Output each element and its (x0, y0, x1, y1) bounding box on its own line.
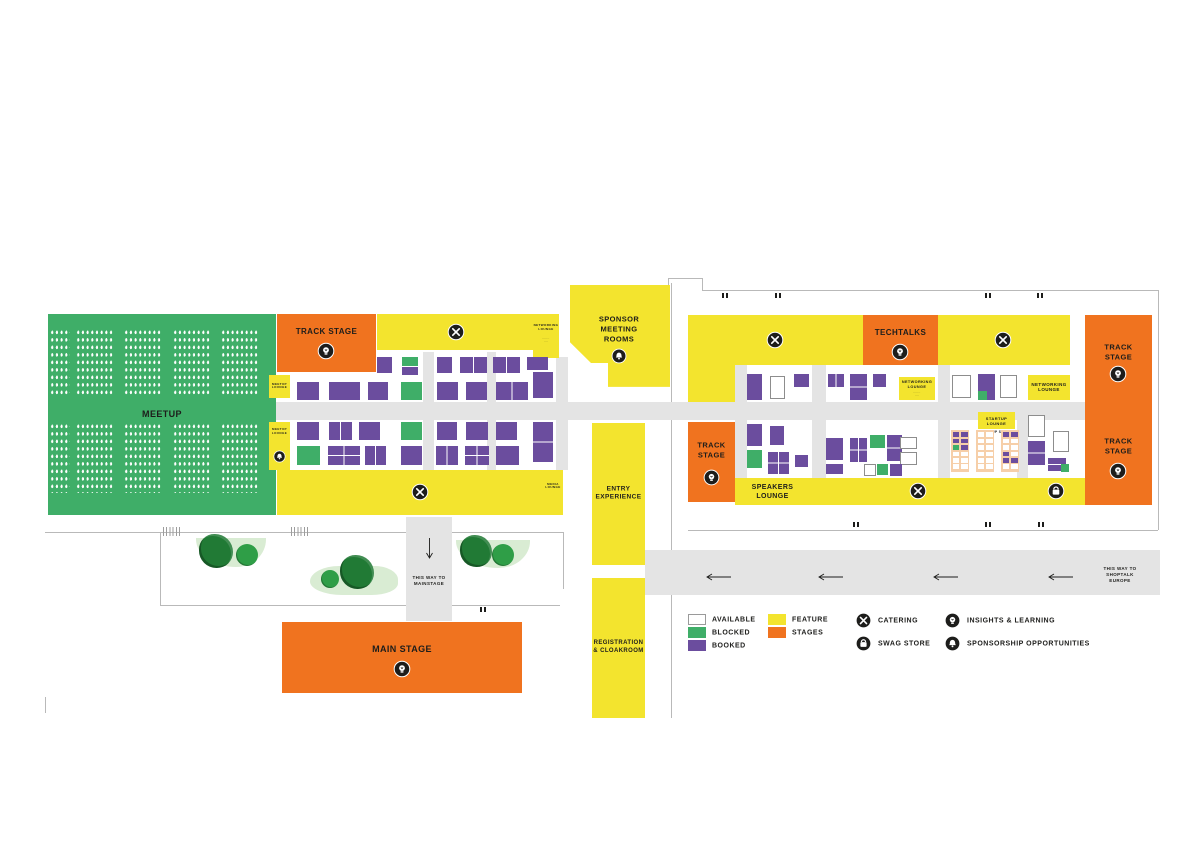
booth-booked[interactable] (794, 374, 809, 387)
legend-label: BLOCKED (712, 630, 750, 637)
studio-table-available[interactable] (986, 432, 993, 437)
studio-table-available[interactable] (986, 439, 993, 444)
floor-plan-canvas: MEETUPTRACK STAGENETWORKING LOUNGE······… (0, 0, 1200, 848)
entry-experience-label: ENTRY EXPERIENCE (596, 486, 642, 503)
tree-icon (340, 555, 374, 589)
legend-swatch-feature (768, 614, 786, 625)
legend-swatch-blocked (688, 627, 706, 638)
corridor (735, 365, 747, 478)
booth-booked[interactable] (465, 446, 489, 465)
wall-segment (452, 532, 564, 533)
door-mark-icon (1038, 522, 1045, 527)
wall-segment (45, 532, 406, 533)
techtalks-insights-icon (891, 343, 909, 361)
startup-lounge-label: STARTUP LOUNGE (986, 415, 1007, 425)
booth-available[interactable] (770, 376, 785, 399)
door-mark-icon (722, 293, 729, 298)
booth-booked[interactable] (873, 374, 886, 387)
studio-table-available[interactable] (978, 464, 985, 469)
studio-table-available[interactable] (978, 432, 985, 437)
wall-segment (668, 278, 669, 286)
feature-bottom-east-b-swag-icon (1047, 482, 1065, 500)
booth-booked[interactable] (496, 422, 517, 440)
left-arrow-icon (705, 568, 731, 576)
booth-booked[interactable] (1028, 441, 1045, 465)
studio-table-available[interactable] (961, 458, 968, 463)
legend-label: BOOKED (712, 643, 746, 650)
stair-hatch (291, 527, 309, 536)
zone-main-stage (282, 622, 522, 693)
zone-track-stage-east-left (688, 422, 735, 502)
meetup-seats (50, 329, 70, 395)
studio-table-available[interactable] (961, 452, 968, 457)
track-stage-west-label: TRACK STAGE (296, 327, 358, 337)
networking-lounge-west-label: NETWORKING LOUNGE (534, 324, 559, 332)
legend-insights-icon (944, 612, 961, 629)
legend-catering-icon (855, 612, 872, 629)
studio-table-booked[interactable] (1003, 458, 1010, 463)
booth-booked[interactable] (436, 446, 458, 465)
main-stage-label: MAIN STAGE (372, 644, 432, 656)
booth-booked[interactable] (533, 422, 553, 462)
studio-table-booked[interactable] (961, 432, 968, 437)
zone-feature-col-east (688, 365, 735, 402)
legend-swatch-available (688, 614, 706, 625)
legend-label: CATERING (878, 617, 918, 624)
left-arrow-icon (932, 568, 958, 576)
booth-available[interactable] (1028, 415, 1045, 437)
wall-segment (452, 605, 560, 606)
track-stage-west-insights-icon (317, 342, 335, 360)
track-stage-south-east-label: TRACK STAGE (1104, 436, 1132, 456)
booth-booked[interactable] (328, 446, 360, 465)
left-arrow-icon (817, 568, 843, 576)
booth-available[interactable] (1000, 375, 1017, 398)
door-mark-icon (480, 607, 487, 612)
booth-available[interactable] (900, 452, 917, 465)
door-mark-icon (985, 522, 992, 527)
meetup-seats (221, 329, 259, 395)
legend-label: INSIGHTS & LEARNING (967, 617, 1055, 624)
wall-segment (160, 532, 161, 605)
track-stage-east-left-insights-icon (703, 469, 720, 486)
meetup-seats (50, 423, 70, 493)
booth-booked[interactable] (850, 374, 867, 400)
meetup-seats (124, 329, 162, 395)
booth-booked[interactable] (359, 422, 380, 440)
booth-blocked[interactable] (401, 382, 422, 400)
zone-networking-lounge-west (533, 314, 559, 358)
studio-table-available[interactable] (978, 445, 985, 450)
booth-blocked[interactable] (1061, 464, 1069, 472)
media-lounge-label: MEDIA LOUNGE (545, 483, 560, 491)
booth-blocked[interactable] (401, 422, 422, 440)
studio-table-blocked[interactable] (953, 445, 960, 450)
studio-table-available[interactable] (961, 464, 968, 469)
meetup-seats (76, 423, 114, 493)
studio-table-booked[interactable] (1011, 458, 1018, 463)
wall-segment (563, 532, 564, 589)
studio-table-available[interactable] (986, 458, 993, 463)
studio-table-available[interactable] (978, 458, 985, 463)
meetup-area-label: MEETUP (142, 409, 182, 421)
sponsor-meeting-rooms-sponsorship-icon (611, 348, 627, 364)
legend-label: STAGES (792, 630, 823, 637)
meetup-seats (124, 423, 162, 493)
legend-label: FEATURE (792, 617, 828, 624)
down-arrow-icon (426, 538, 433, 562)
wall-segment (688, 530, 1158, 531)
booth-booked[interactable] (493, 357, 520, 373)
booth-booked[interactable] (850, 438, 867, 462)
booth-booked[interactable] (329, 422, 352, 440)
booth-booked[interactable] (496, 382, 528, 400)
studio-table-available[interactable] (953, 464, 960, 469)
shoptalk-way-label-label: THIS WAY TO SHOPTALK EUROPE (1103, 566, 1136, 584)
studio-table-available[interactable] (1011, 464, 1018, 469)
booth-booked[interactable] (437, 382, 458, 400)
studio-table-available[interactable] (978, 439, 985, 444)
studio-table-available[interactable] (1003, 445, 1010, 450)
studio-table-available[interactable] (953, 452, 960, 457)
tree-icon (236, 544, 258, 566)
meetup-seats (173, 329, 211, 395)
networking-lounge-east-label: NETWORKING LOUNGE (1031, 382, 1066, 394)
booth-booked[interactable] (747, 424, 762, 446)
studio-table-booked[interactable] (953, 439, 960, 444)
corridor (812, 365, 826, 478)
track-stage-south-east-insights-icon (1109, 462, 1127, 480)
studio-table-booked[interactable] (961, 445, 968, 450)
studio-table-booked[interactable] (1011, 432, 1018, 437)
techtalks-label: TECHTALKS (875, 328, 926, 338)
feature-top-west-catering-icon (447, 323, 465, 341)
legend-swatch-stages (768, 627, 786, 638)
studio-table-available[interactable] (953, 458, 960, 463)
corridor (423, 352, 434, 470)
corridor (556, 357, 568, 470)
networking-lounge-west-sublabel: ······· ···· (542, 338, 549, 343)
zone-track-stage-south-east (1085, 407, 1152, 505)
booth-booked[interactable] (795, 455, 808, 467)
feature-top-east-b-catering-icon (994, 331, 1012, 349)
booth-booked[interactable] (533, 372, 553, 398)
meetup-seats (173, 423, 211, 493)
meetup-lounge-a-label: MEETUP LOUNGE (272, 383, 287, 391)
door-mark-icon (985, 293, 992, 298)
wall-segment (671, 595, 672, 718)
booth-booked[interactable] (365, 446, 386, 465)
feature-top-east-a-catering-icon (766, 331, 784, 349)
booth-booked[interactable] (826, 464, 843, 474)
booth-available[interactable] (1053, 431, 1069, 452)
meetup-seats (221, 423, 259, 493)
wall-segment (1158, 290, 1159, 530)
studio-table-available[interactable] (1011, 452, 1018, 457)
legend-label: SPONSORSHIP OPPORTUNITIES (967, 640, 1090, 647)
studio-table-booked[interactable] (1003, 432, 1010, 437)
legend-swag-icon (855, 635, 872, 652)
booth-booked[interactable] (402, 367, 418, 375)
legend-swatch-booked (688, 640, 706, 651)
booth-booked[interactable] (768, 452, 789, 474)
booth-booked[interactable] (377, 357, 392, 373)
legend-sponsorship-icon (944, 635, 961, 652)
corridor (406, 517, 452, 621)
booth-booked[interactable] (460, 357, 487, 373)
booth-booked[interactable] (437, 357, 452, 373)
wall-segment (45, 697, 46, 713)
meetup-lounge-b-label: MEETUP LOUNGE (272, 428, 287, 436)
studio-table-available[interactable] (986, 464, 993, 469)
sponsor-meeting-rooms-label: SPONSOR MEETING ROOMS (599, 314, 639, 343)
studio-table-available[interactable] (986, 445, 993, 450)
booth-blocked[interactable] (747, 450, 762, 468)
left-arrow-icon (1047, 568, 1073, 576)
booth-available[interactable] (900, 437, 917, 449)
door-mark-icon (853, 522, 860, 527)
door-mark-icon (1037, 293, 1044, 298)
booth-booked[interactable] (747, 374, 762, 400)
speakers-lounge-label: SPEAKERS LOUNGE (752, 482, 794, 500)
booth-available[interactable] (864, 464, 876, 476)
meetup-lounge-b-sponsorship-icon (273, 450, 286, 463)
booth-booked[interactable] (466, 382, 487, 400)
booth-booked[interactable] (826, 438, 843, 460)
booth-booked[interactable] (527, 357, 548, 370)
studio-table-available[interactable] (986, 452, 993, 457)
studio-table-available[interactable] (1003, 464, 1010, 469)
tree-icon (199, 534, 233, 568)
booth-booked[interactable] (770, 426, 784, 445)
booth-booked[interactable] (297, 382, 319, 400)
meetup-seats (76, 329, 114, 395)
wall-segment (160, 605, 406, 606)
booth-booked[interactable] (466, 422, 488, 440)
studio-table-booked[interactable] (953, 432, 960, 437)
legend-label: SWAG STORE (878, 640, 930, 647)
feature-bottom-west-catering-icon (411, 483, 429, 501)
booth-blocked[interactable] (870, 435, 885, 448)
legend-label: AVAILABLE (712, 617, 756, 624)
stair-hatch (163, 527, 181, 536)
booth-booked[interactable] (890, 464, 902, 476)
studio-table-available[interactable] (1011, 439, 1018, 444)
corridor (276, 402, 1085, 420)
wall-segment (668, 278, 702, 279)
networking-lounge-mid-sublabel: ······· ···· (913, 392, 920, 397)
tree-icon (460, 535, 492, 567)
booth-booked[interactable] (297, 422, 319, 440)
studio-table-available[interactable] (1003, 439, 1010, 444)
main-stage-insights-icon (393, 660, 411, 678)
booth-booked[interactable] (828, 374, 844, 387)
studio-table-booked[interactable] (961, 439, 968, 444)
studio-table-available[interactable] (1011, 445, 1018, 450)
booth-blocked[interactable] (297, 446, 320, 465)
studio-table-available[interactable] (978, 452, 985, 457)
booth-booked[interactable] (496, 446, 519, 465)
booth-available[interactable] (952, 375, 971, 398)
wall-segment (702, 290, 1158, 291)
booth-blocked[interactable] (877, 464, 888, 475)
tree-icon (321, 570, 339, 588)
booth-booked[interactable] (401, 446, 422, 465)
track-stage-east-left-label: TRACK STAGE (697, 440, 725, 460)
track-stage-north-east-label: TRACK STAGE (1104, 342, 1132, 362)
booth-booked[interactable] (329, 382, 360, 400)
booth-blocked[interactable] (978, 391, 987, 400)
booth-blocked[interactable] (402, 357, 418, 366)
wall-segment (702, 278, 703, 290)
feature-bottom-east-a-catering-icon (909, 482, 927, 500)
door-mark-icon (775, 293, 782, 298)
tree-icon (492, 544, 514, 566)
studio-table-booked[interactable] (1003, 452, 1010, 457)
mainstage-way-label-label: THIS WAY TO MAINSTAGE (412, 575, 445, 587)
booth-booked[interactable] (368, 382, 388, 400)
networking-lounge-mid-label: NETWORKING LOUNGE (902, 380, 932, 390)
booth-booked[interactable] (437, 422, 457, 440)
registration-cloakroom-label: REGISTRATION & CLOAKROOM (593, 640, 643, 656)
track-stage-north-east-insights-icon (1109, 365, 1127, 383)
corridor (938, 365, 950, 478)
